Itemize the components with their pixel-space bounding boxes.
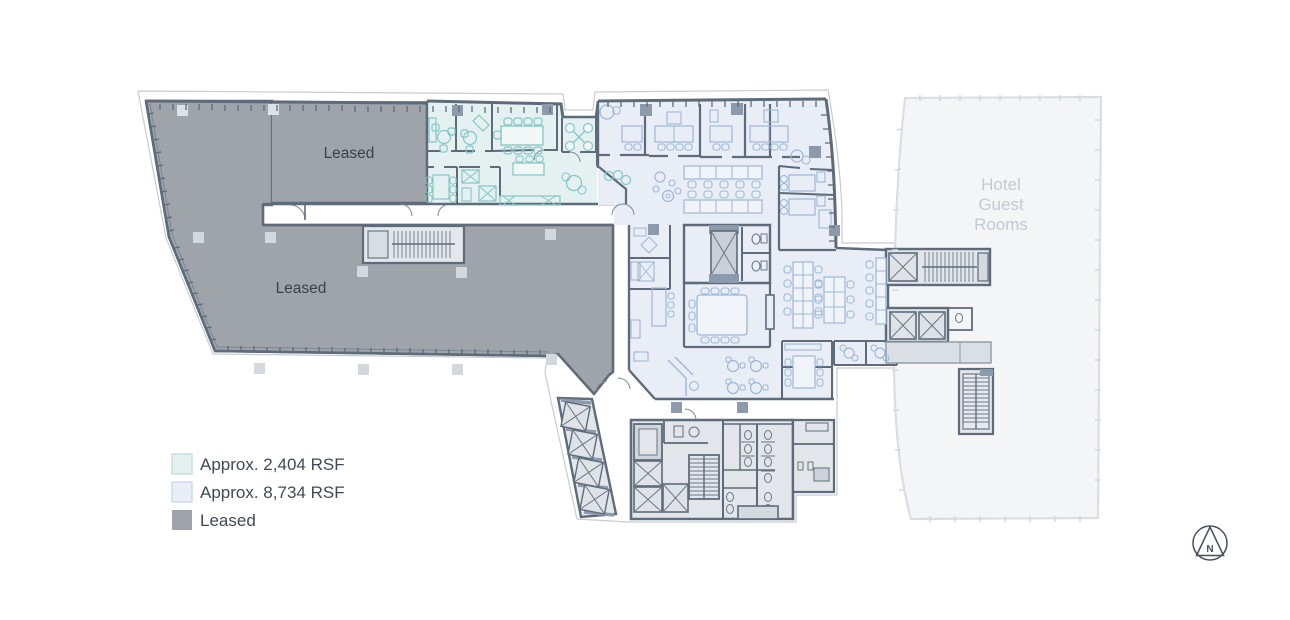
svg-text:Approx. 2,404 RSF: Approx. 2,404 RSF (200, 455, 345, 474)
svg-text:Leased: Leased (200, 511, 256, 530)
svg-text:N: N (1206, 544, 1213, 555)
svg-text:Approx. 8,734 RSF: Approx. 8,734 RSF (200, 483, 345, 502)
svg-text:Leased: Leased (324, 145, 375, 162)
svg-text:Hotel: Hotel (981, 175, 1021, 194)
svg-text:Guest: Guest (978, 195, 1024, 214)
svg-text:Rooms: Rooms (974, 215, 1028, 234)
svg-text:Leased: Leased (276, 280, 327, 297)
